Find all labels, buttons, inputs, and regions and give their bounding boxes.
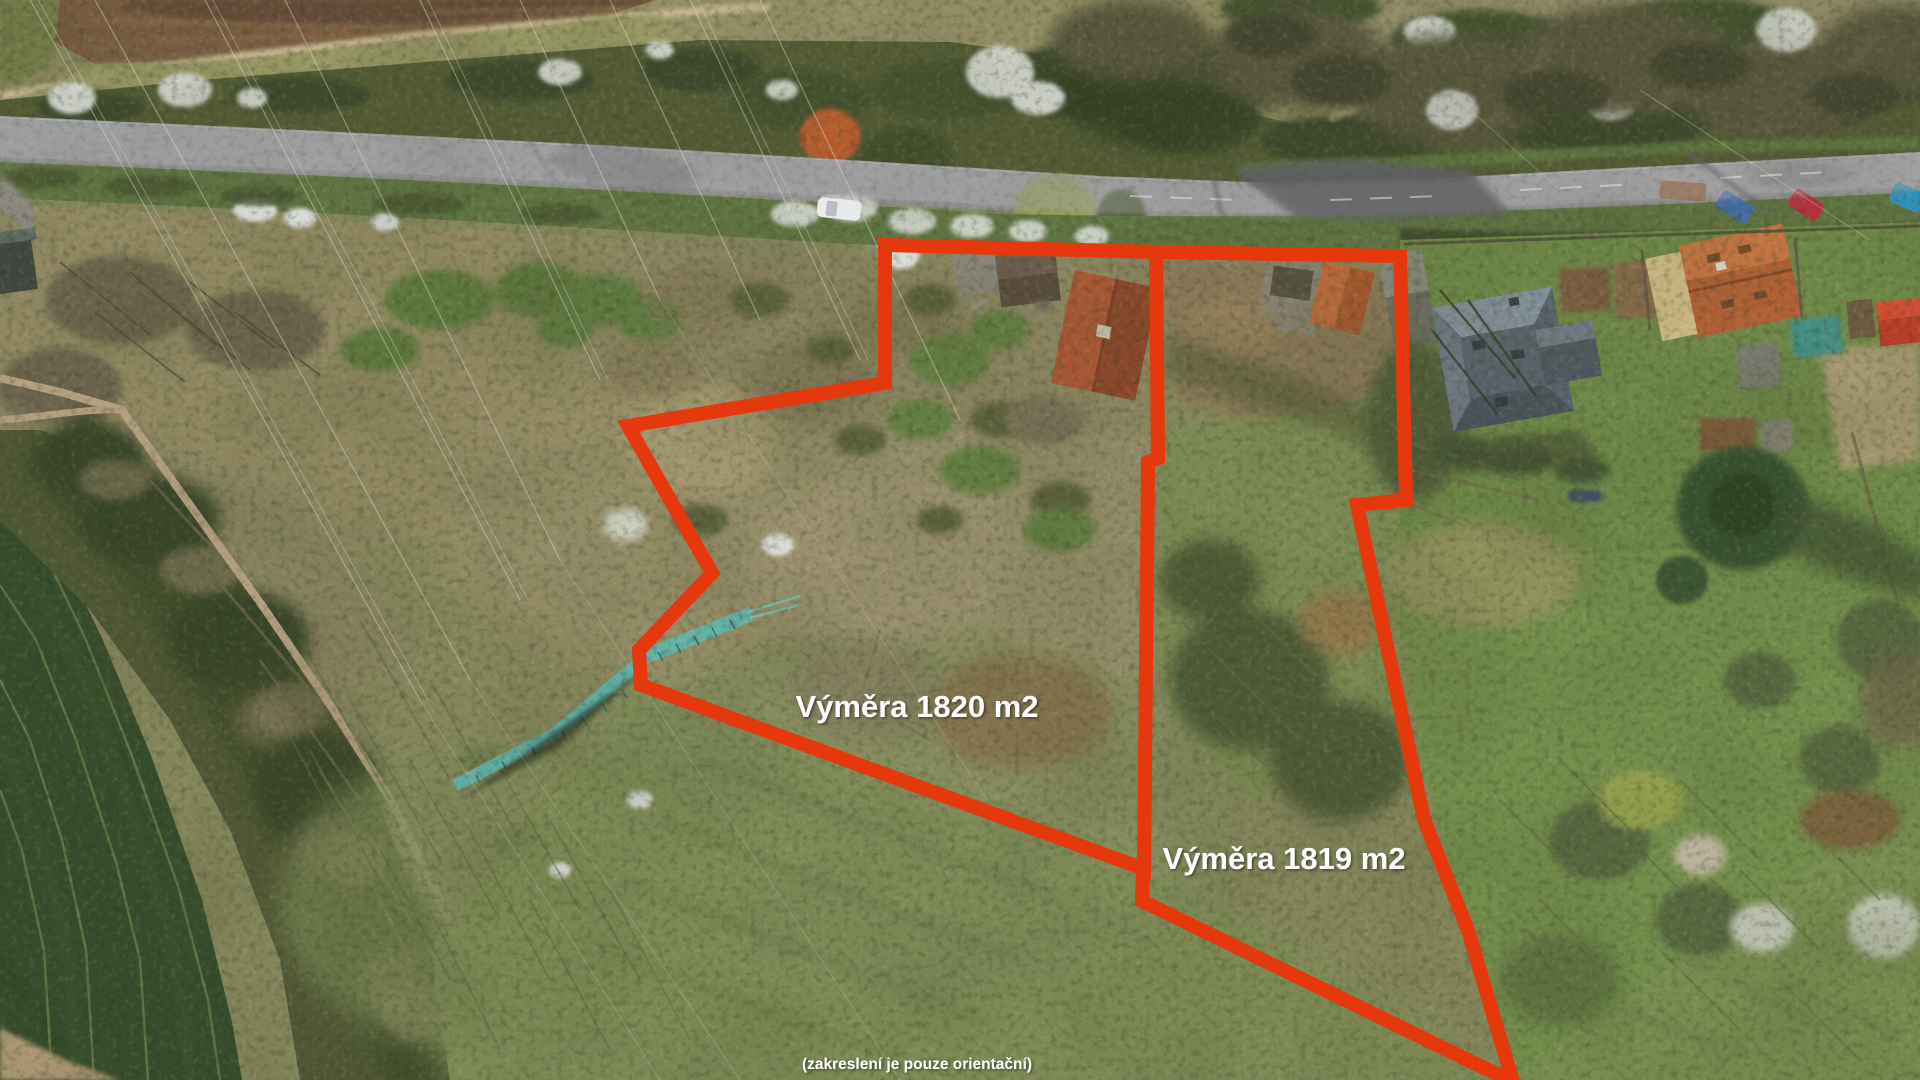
svg-text:(zakreslení je pouze orientačn: (zakreslení je pouze orientační)	[802, 1056, 1032, 1073]
svg-text:Výměra 1820 m2: Výměra 1820 m2	[795, 689, 1038, 724]
svg-text:Výměra 1819 m2: Výměra 1819 m2	[1162, 841, 1405, 876]
